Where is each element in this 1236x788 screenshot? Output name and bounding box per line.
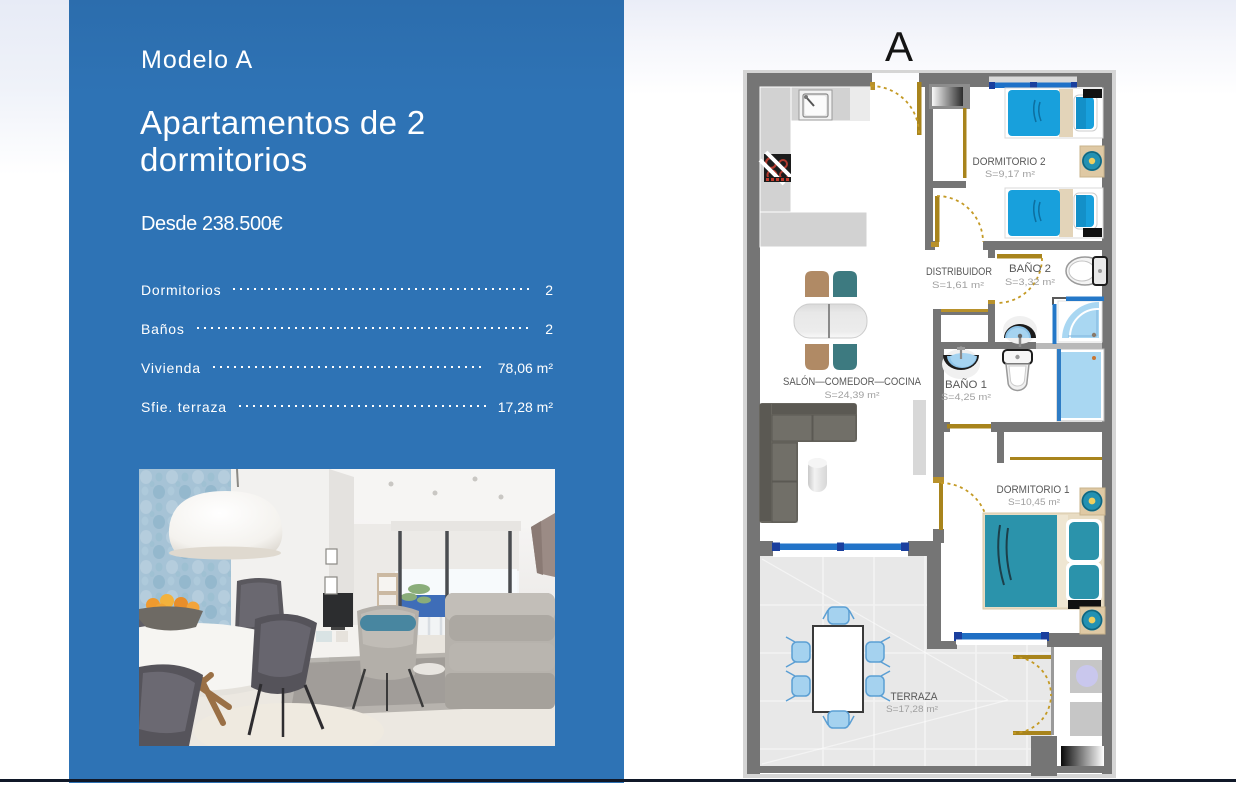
svg-text:S=24,39 m²: S=24,39 m² <box>825 390 880 400</box>
svg-text:S=1,61 m²: S=1,61 m² <box>932 280 984 290</box>
svg-text:S=9,17 m²: S=9,17 m² <box>985 169 1035 179</box>
svg-text:BAÑO 2: BAÑO 2 <box>1009 262 1051 275</box>
svg-text:DISTRIBUIDOR: DISTRIBUIDOR <box>926 266 992 278</box>
svg-text:S=10,45 m²: S=10,45 m² <box>1008 497 1060 507</box>
svg-text:DORMITORIO 1: DORMITORIO 1 <box>997 484 1070 496</box>
svg-text:A: A <box>885 23 913 70</box>
svg-text:TERRAZA: TERRAZA <box>891 691 939 703</box>
svg-text:SALÓN—COMEDOR—COCINA: SALÓN—COMEDOR—COCINA <box>783 375 922 388</box>
svg-text:S=3,32 m²: S=3,32 m² <box>1005 277 1055 287</box>
svg-text:S=17,28 m²: S=17,28 m² <box>886 704 938 714</box>
svg-text:BAÑO 1: BAÑO 1 <box>945 378 987 391</box>
svg-text:S=4,25 m²: S=4,25 m² <box>941 392 991 402</box>
svg-text:DORMITORIO 2: DORMITORIO 2 <box>973 156 1046 168</box>
